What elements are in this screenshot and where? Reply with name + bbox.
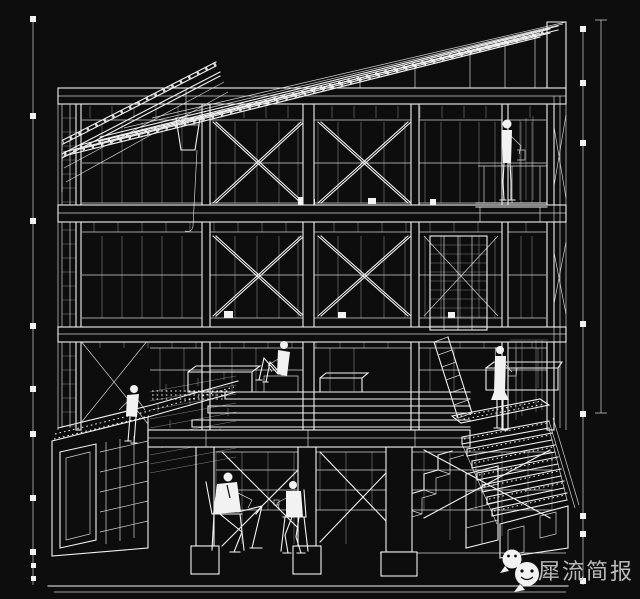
screenshot-root: 犀流简报 bbox=[0, 0, 640, 599]
watermark-text: 犀流简报 bbox=[538, 560, 634, 585]
section-perspective-drawing: 犀流简报 bbox=[0, 0, 640, 599]
